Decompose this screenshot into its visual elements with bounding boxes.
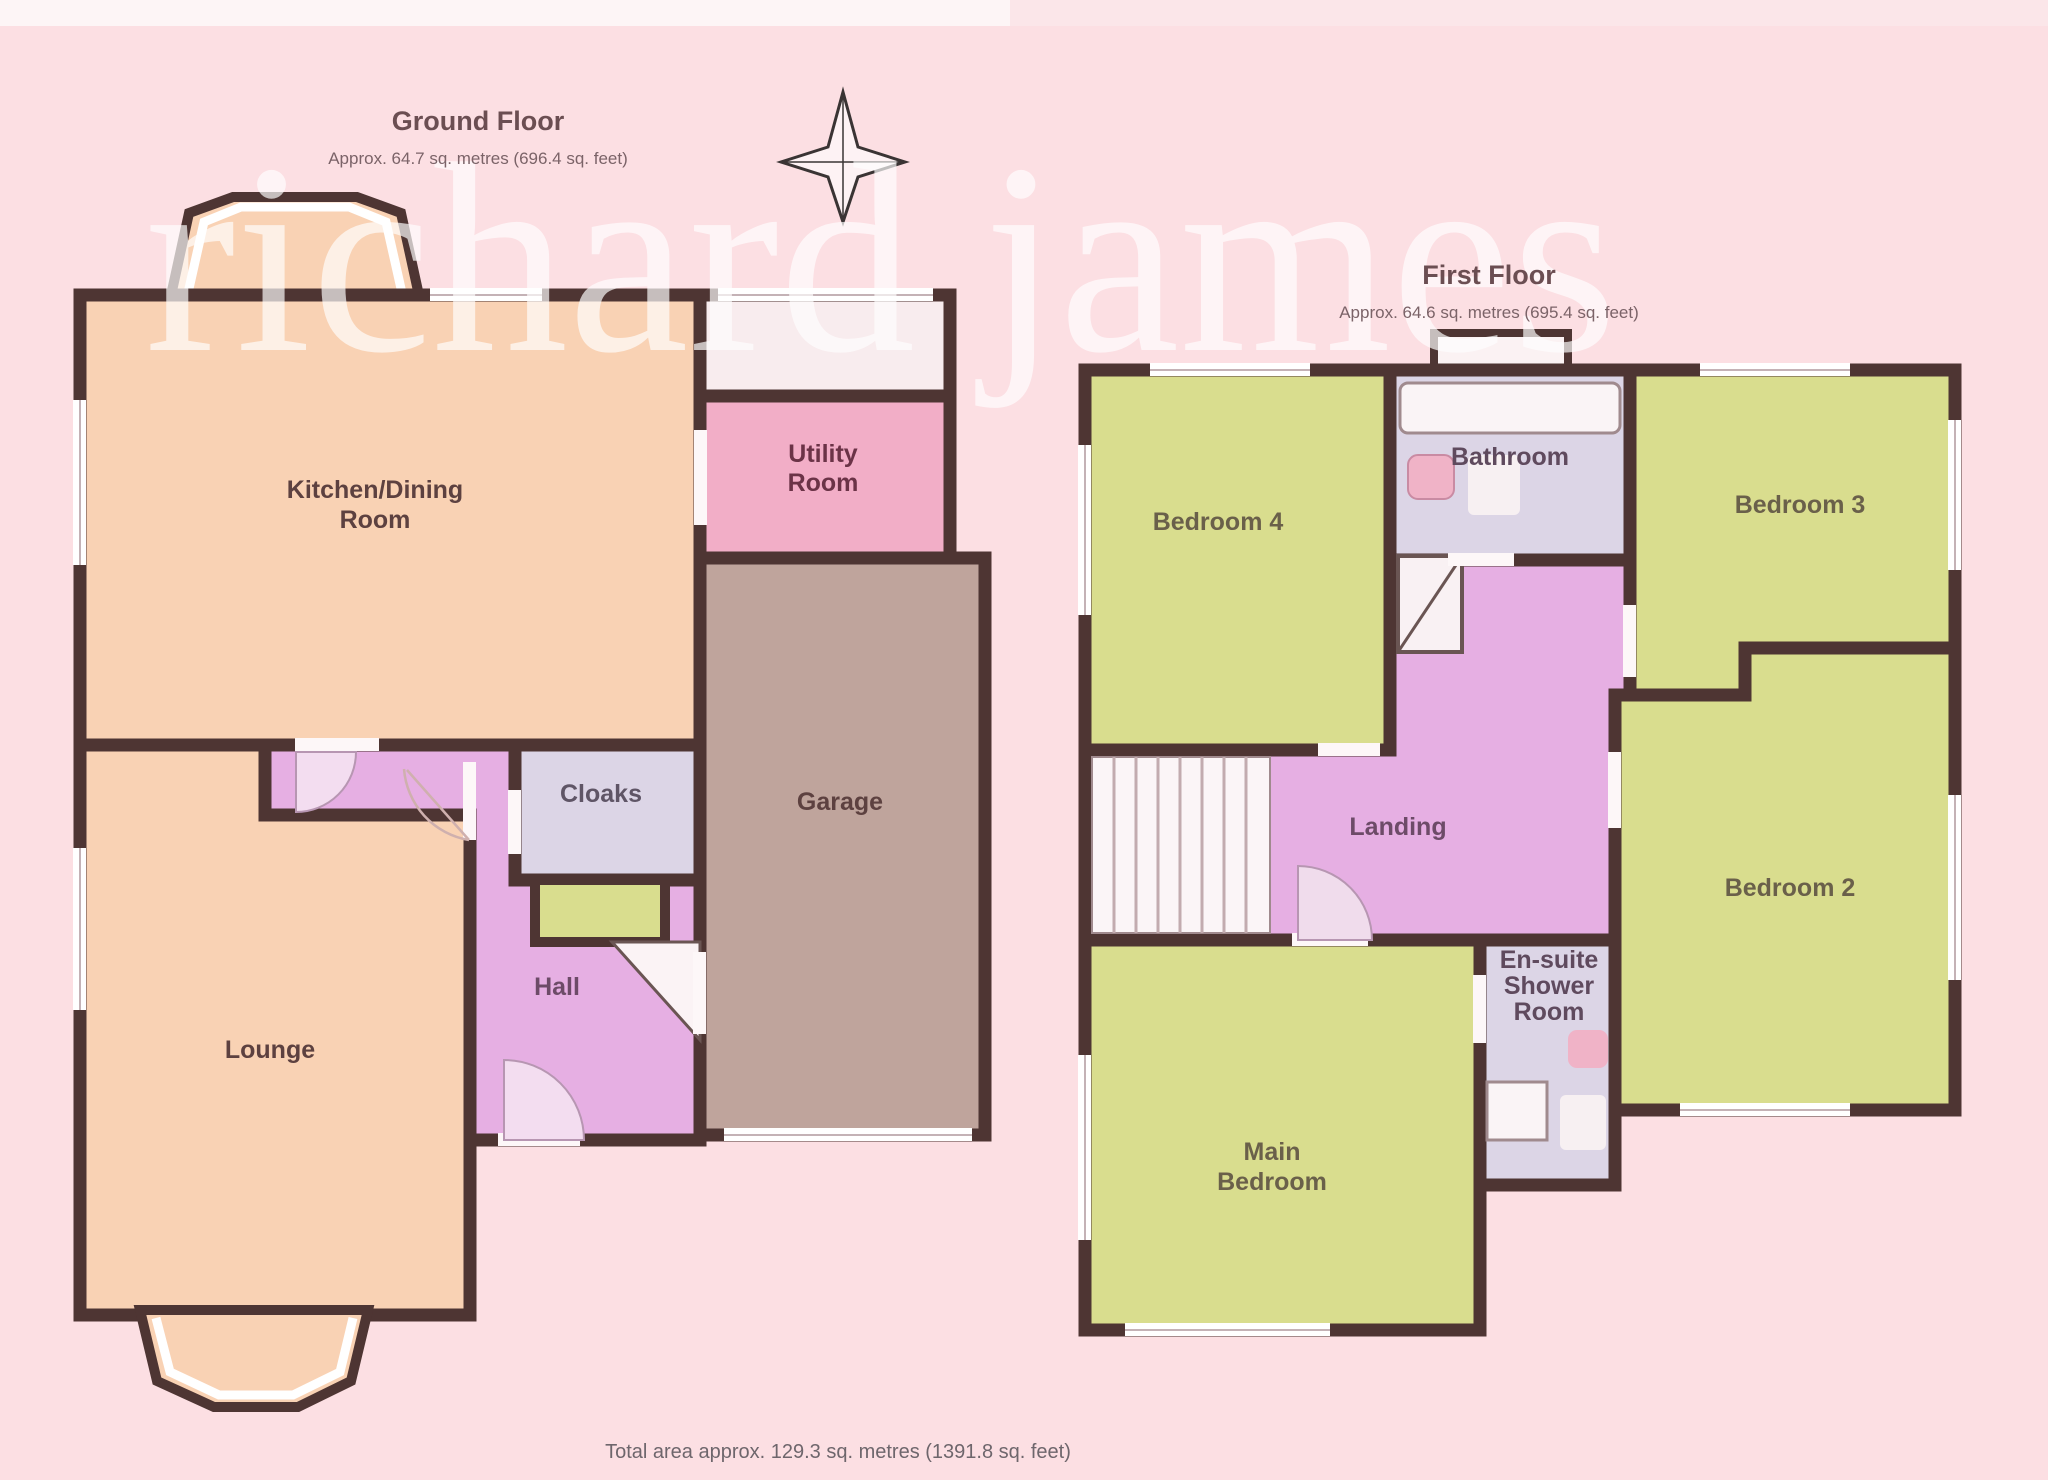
door-hall-garage — [693, 952, 706, 1034]
top-strip-right — [1010, 0, 2048, 26]
door-hall-lounge — [463, 762, 476, 840]
bedroom4-label: Bedroom 4 — [1153, 508, 1284, 536]
door-bedroom4 — [1318, 743, 1380, 756]
cloaks-label: Cloaks — [560, 780, 642, 808]
kitchen-label-line1: Kitchen/Dining — [287, 476, 463, 504]
top-strip-left — [0, 0, 1010, 26]
garage-label: Garage — [797, 788, 883, 816]
room-cupboard — [535, 880, 665, 942]
hall-label: Hall — [534, 973, 580, 1001]
bathroom-label: Bathroom — [1451, 443, 1569, 471]
bedroom2-label: Bedroom 2 — [1725, 874, 1856, 902]
ensuite-sink-icon — [1568, 1030, 1608, 1068]
total-area-note: Total area approx. 129.3 sq. metres (139… — [605, 1441, 1071, 1463]
main-bedroom-label-line2: Bedroom — [1217, 1168, 1327, 1196]
bedroom3-label: Bedroom 3 — [1735, 491, 1866, 519]
door-ensuite — [1473, 975, 1486, 1043]
utility-label-line1: Utility — [788, 440, 858, 468]
door-bedroom3 — [1623, 605, 1636, 677]
floorplan-canvas: Kitchen/Dining Room Utility Room Garage … — [0, 0, 2048, 1480]
ground-floor-title: Ground Floor — [392, 106, 565, 136]
door-bedroom2 — [1608, 752, 1621, 828]
room-garage — [700, 558, 985, 1135]
door-kitchen-hall — [295, 738, 379, 751]
bathroom-sink-icon — [1408, 455, 1454, 499]
door-cloaks — [508, 790, 521, 854]
main-bedroom-label-line1: Main — [1244, 1138, 1301, 1166]
kitchen-label-line2: Room — [340, 506, 411, 534]
door-bathroom — [1448, 553, 1514, 566]
room-cloaks — [515, 745, 700, 880]
ground-floor-area-note: Approx. 64.7 sq. metres (696.4 sq. feet) — [328, 149, 628, 168]
floorplan-drawing: Kitchen/Dining Room Utility Room Garage … — [0, 0, 2048, 1480]
room-lounge — [80, 745, 470, 1315]
ensuite-label-line2: Shower — [1504, 972, 1595, 1000]
lounge-label: Lounge — [225, 1036, 315, 1064]
room-bedroom4 — [1085, 370, 1390, 750]
first-floor-plan: Bedroom 4 Bathroom Bedroom 3 Bedroom 2 L… — [1078, 333, 1961, 1336]
first-floor-area-note: Approx. 64.6 sq. metres (695.4 sq. feet) — [1339, 303, 1639, 322]
door-kitchen-utility — [694, 430, 707, 525]
utility-label-line2: Room — [788, 469, 859, 497]
ensuite-toilet-icon — [1560, 1095, 1606, 1150]
ensuite-label-line3: Room — [1514, 998, 1585, 1026]
landing-label: Landing — [1349, 813, 1446, 841]
first-floor-title: First Floor — [1422, 260, 1556, 290]
ensuite-label-line1: En-suite — [1500, 946, 1599, 974]
airing-cupboard — [1398, 556, 1462, 652]
room-main-bedroom — [1085, 940, 1480, 1330]
shower-icon — [1487, 1082, 1547, 1140]
